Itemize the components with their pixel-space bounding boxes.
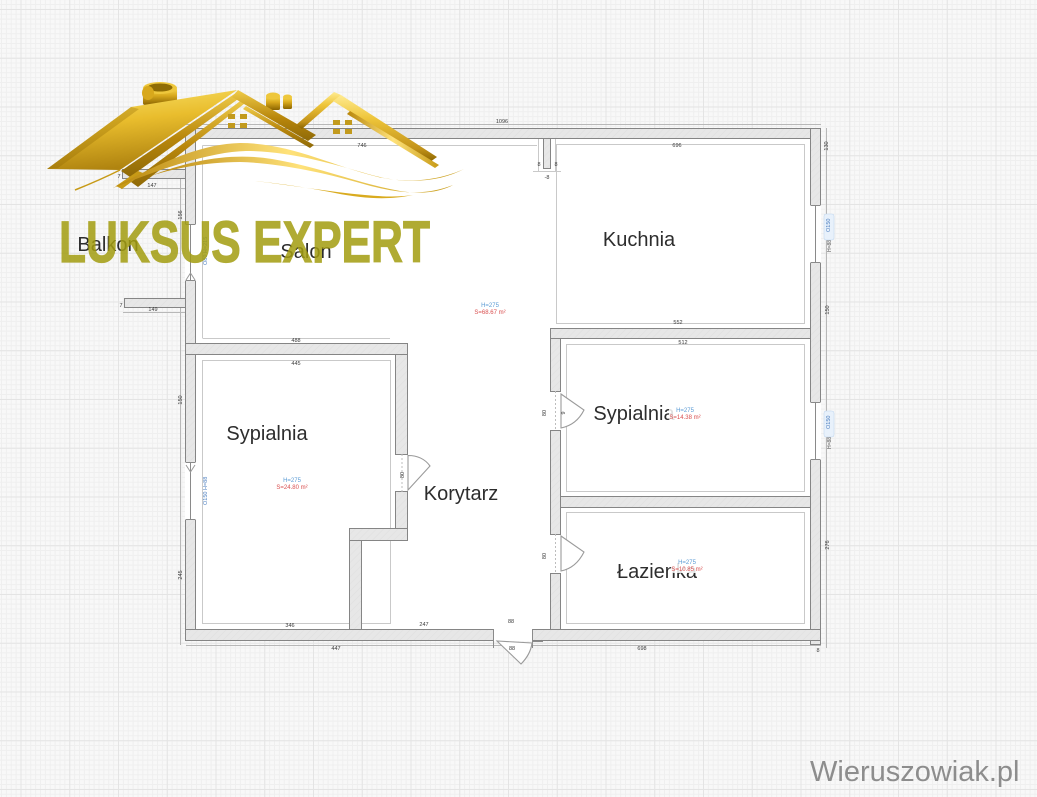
svg-text:-8: -8 [545,175,550,181]
svg-text:1096: 1096 [496,119,508,125]
svg-text:447: 447 [331,646,340,652]
svg-text:LUKSUS EXPERT: LUKSUS EXPERT [59,210,430,275]
svg-text:130: 130 [824,141,830,150]
svg-text:9: 9 [561,411,567,414]
svg-text:80: 80 [542,410,548,416]
svg-text:H=88: H=88 [827,240,833,252]
svg-text:S=24.80 m²: S=24.80 m² [276,485,307,491]
svg-text:346: 346 [285,623,294,629]
svg-text:8: 8 [816,648,819,654]
svg-text:488: 488 [291,338,300,344]
svg-text:Wieruszowiak.pl: Wieruszowiak.pl [810,756,1020,788]
svg-text:8: 8 [554,162,557,168]
svg-text:S=14.38 m²: S=14.38 m² [669,415,700,421]
svg-text:S=10.85 m²: S=10.85 m² [671,567,702,573]
svg-text:O150 H=88: O150 H=88 [203,477,209,505]
svg-text:696: 696 [672,143,681,149]
svg-text:O150: O150 [826,219,832,232]
svg-text:149: 149 [148,307,157,313]
svg-text:7: 7 [117,174,120,180]
svg-text:Kuchnia: Kuchnia [603,229,676,251]
svg-text:445: 445 [291,361,300,367]
svg-text:H=275: H=275 [676,408,695,414]
svg-text:698: 698 [637,646,646,652]
svg-text:88: 88 [508,619,514,625]
svg-text:S=68.67 m²: S=68.67 m² [474,310,505,316]
svg-text:H=275: H=275 [283,478,302,484]
svg-text:245: 245 [178,570,184,579]
svg-text:276: 276 [825,540,831,549]
svg-text:O150: O150 [826,416,832,429]
svg-text:H=275: H=275 [678,560,697,566]
svg-text:150: 150 [178,395,184,404]
svg-text:80: 80 [400,472,406,478]
svg-text:247: 247 [419,622,428,628]
svg-text:H=275: H=275 [481,303,500,309]
svg-text:746: 746 [357,143,366,149]
svg-text:Sypialnia: Sypialnia [226,423,308,445]
svg-text:Sypialnia: Sypialnia [593,403,675,425]
svg-text:147: 147 [147,183,156,189]
svg-text:H=88: H=88 [827,437,833,449]
svg-text:88: 88 [509,646,515,652]
svg-text:Korytarz: Korytarz [424,483,498,505]
svg-text:512: 512 [678,340,687,346]
svg-text:80: 80 [542,553,548,559]
svg-text:8: 8 [537,162,540,168]
svg-text:150: 150 [825,305,831,314]
svg-text:7: 7 [119,303,122,309]
svg-text:552: 552 [673,320,682,326]
